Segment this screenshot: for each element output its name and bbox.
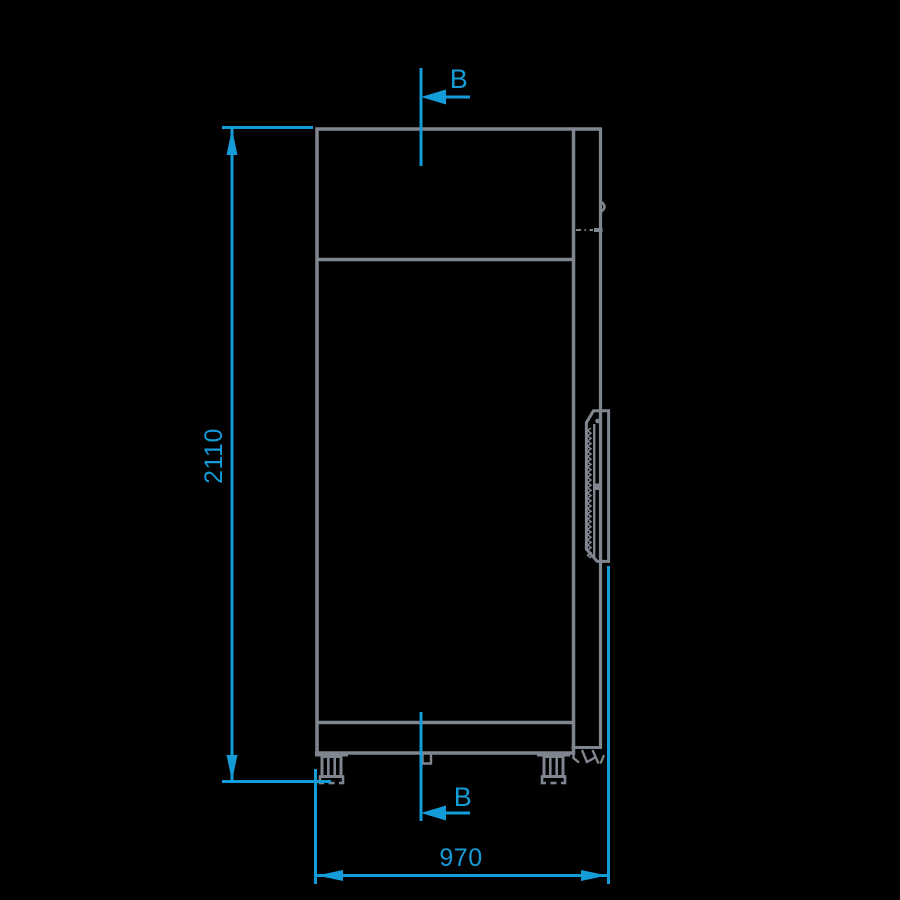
foot-base-notch [335, 780, 340, 785]
technical-drawing: 2110 970 B B [0, 0, 900, 900]
width-dimension-label: 970 [439, 844, 482, 872]
door-handle [586, 411, 608, 562]
foot-base [542, 777, 565, 784]
handle-detent [594, 484, 599, 491]
door-panel [423, 128, 605, 764]
drain-bracket [423, 754, 432, 764]
section-arrow-left-icon [421, 90, 446, 105]
bottom-hinge-tick [601, 755, 605, 764]
arrow-right-icon [581, 870, 607, 881]
arrow-up-icon [227, 129, 238, 155]
drawing-canvas: 2110 970 B B [0, 0, 900, 900]
height-dimension-label: 2110 [200, 428, 228, 484]
bottom-hinge [572, 748, 605, 764]
foot-body [322, 757, 341, 777]
bottom-hinge-bracket-left [574, 750, 580, 763]
cabinet-outline [317, 129, 574, 753]
foot-body [544, 757, 563, 777]
foot-base-notch [557, 780, 562, 785]
foot-right [537, 752, 570, 785]
foot-left [315, 752, 348, 785]
handle-grip-serration [588, 428, 591, 558]
height-dimension: 2110 [200, 128, 331, 782]
foot-base-notch [546, 780, 551, 785]
section-label-bottom: B [454, 782, 473, 812]
arrow-down-icon [227, 755, 238, 781]
section-label-top: B [450, 64, 469, 94]
handle-pin-icon [595, 419, 600, 424]
arrow-left-icon [317, 870, 343, 881]
bottom-hinge-bracket-right [593, 750, 599, 764]
section-marker-top: B [421, 64, 470, 166]
section-arrow-left-icon [421, 806, 446, 821]
cabinet-body [317, 129, 574, 753]
section-marker-bottom: B [421, 712, 472, 821]
width-dimension: 970 [316, 566, 609, 884]
